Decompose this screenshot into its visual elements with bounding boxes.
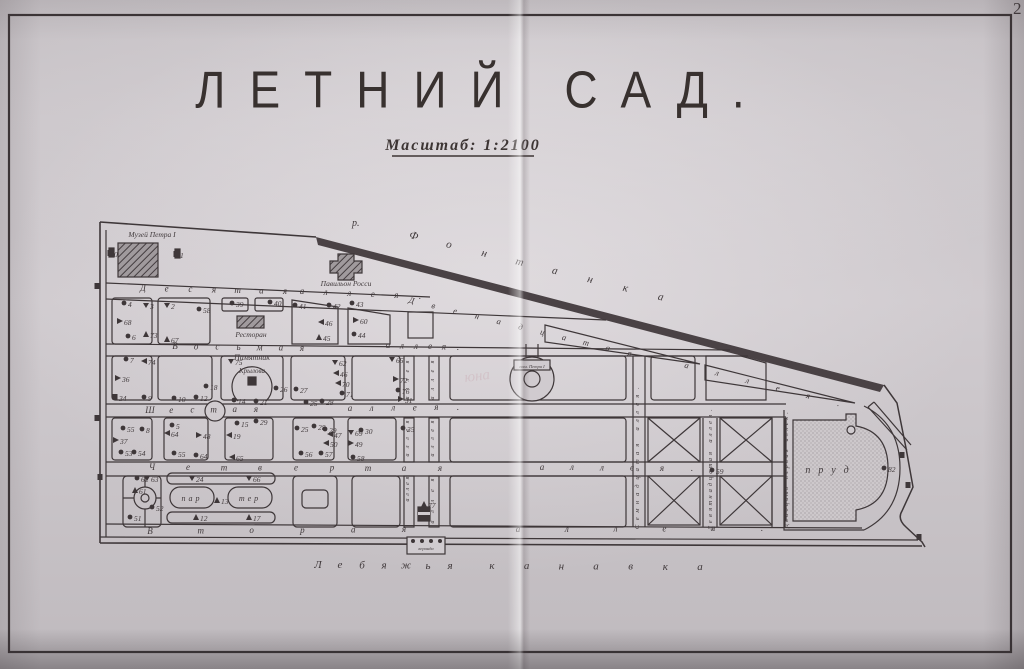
alley-label: т xyxy=(365,463,372,473)
alley-label: ь xyxy=(784,487,790,490)
alley-label: л xyxy=(599,462,604,472)
point-dot-icon xyxy=(254,419,259,424)
map-point: 48 xyxy=(196,432,211,441)
point-number: 70 xyxy=(342,380,350,389)
map-point: 2 xyxy=(164,302,175,311)
map-point: 58 xyxy=(197,306,211,315)
alley-label: я xyxy=(430,360,436,364)
map-point xyxy=(900,452,905,458)
point-square-icon xyxy=(113,394,118,400)
alley-label: е xyxy=(165,284,169,294)
scanned-map-photo: 2 ЛЕТНИЙ САД. Масштаб: 1:2100 юна xyxy=(0,0,1024,669)
alley-label: е xyxy=(634,403,641,406)
alley-label: Ч xyxy=(149,462,156,472)
point-number: 25 xyxy=(301,425,309,434)
map-point: 53 xyxy=(119,449,133,458)
alley-label: а xyxy=(405,499,411,502)
embankment-sliver-1 xyxy=(545,325,700,364)
alley-label: е xyxy=(186,462,190,472)
pond-label: пруд xyxy=(805,465,856,476)
point-dot-icon xyxy=(150,505,155,510)
point-number: 37 xyxy=(119,437,128,446)
point-triangle-down-icon xyxy=(332,360,338,365)
point-dot-icon xyxy=(352,332,357,337)
point-triangle-right-icon xyxy=(393,376,399,382)
map-point: 71 xyxy=(340,390,354,399)
river-label: а xyxy=(524,560,530,572)
point-number: 82 xyxy=(888,465,896,474)
alley-label: л xyxy=(430,387,436,391)
point-triangle-left-icon xyxy=(333,370,339,376)
map-point xyxy=(95,415,100,421)
alley-label: е xyxy=(405,369,411,372)
alley-label: я xyxy=(430,478,436,482)
alley-label: а xyxy=(561,332,567,343)
point-number: 61 xyxy=(139,487,147,496)
point-number: 68 xyxy=(124,318,132,327)
alley-label: о xyxy=(194,341,199,351)
alley-label: д xyxy=(783,508,790,511)
map-point xyxy=(98,474,103,480)
point-dot-icon xyxy=(351,455,356,460)
alley-label: а xyxy=(259,286,264,296)
alley-label: а xyxy=(634,493,641,496)
alley-label: а xyxy=(348,403,353,413)
point-number: 19 xyxy=(233,432,241,441)
point-number: 29 xyxy=(260,418,268,427)
map-point: 15 xyxy=(235,420,249,429)
point-triangle-down-icon xyxy=(348,430,354,435)
alley-label: а xyxy=(351,524,356,534)
alley-label: л xyxy=(634,419,641,423)
point-triangle-right-icon xyxy=(196,432,202,438)
fountain-plate-label: пам. Петра I xyxy=(519,364,545,369)
alley-label: л xyxy=(405,445,411,449)
alley-label: а xyxy=(634,468,641,471)
point-dot-icon xyxy=(232,398,237,403)
alley-label: . xyxy=(836,398,840,408)
point-dot-icon xyxy=(119,450,124,455)
alley-label: е xyxy=(430,429,436,432)
alley-label: е xyxy=(784,422,790,425)
point-dot-icon xyxy=(142,395,147,400)
point-dot-icon xyxy=(172,451,177,456)
point-triangle-up-icon xyxy=(214,497,220,503)
map-point: 62 xyxy=(332,359,347,368)
river-label: Ф xyxy=(408,229,420,243)
ghost-handwriting: юна xyxy=(464,367,491,386)
map-point: 35 xyxy=(401,425,415,434)
alley-label: я xyxy=(430,420,436,424)
alley-label: я xyxy=(405,420,411,424)
point-square-icon xyxy=(95,283,100,289)
map-point: 65 xyxy=(389,356,404,365)
point-number: 49 xyxy=(355,440,363,449)
point-number: 59 xyxy=(716,467,724,476)
map-point: 54 xyxy=(132,449,146,458)
map-point: 18 xyxy=(204,383,218,392)
alley-label: а xyxy=(300,286,305,296)
point-number: 0 xyxy=(114,250,118,259)
map-point: 12 xyxy=(194,394,208,403)
alley-label: е xyxy=(430,489,436,492)
point-number: 25 xyxy=(310,399,318,408)
alley-label: е xyxy=(428,341,432,351)
south-fence-outer xyxy=(100,543,922,546)
alley-label: я xyxy=(634,444,641,448)
map-point: 4 xyxy=(122,300,132,309)
alley-label: е xyxy=(662,523,666,533)
point-number: 71 xyxy=(346,390,354,399)
map-point: 46 xyxy=(318,319,333,328)
alley-label: а xyxy=(634,452,641,455)
point-triangle-up-icon xyxy=(143,331,149,337)
map-scale-note: Масштаб: 1:2100 xyxy=(384,137,541,154)
river-label: а xyxy=(697,561,703,573)
alley-label: л xyxy=(713,367,720,378)
map-point: 37 xyxy=(113,437,128,446)
alley-label: т xyxy=(634,459,641,464)
point-dot-icon xyxy=(293,303,298,308)
alley-label: е xyxy=(405,482,411,485)
point-number: 35 xyxy=(406,425,415,434)
point-dot-icon xyxy=(396,388,401,393)
point-triangle-up-icon xyxy=(193,514,199,520)
point-number: 34 xyxy=(118,394,127,403)
point-number: 55 xyxy=(178,450,186,459)
point-number: 63 xyxy=(151,475,159,484)
alley-label: е xyxy=(169,405,173,415)
point-number: 26 xyxy=(280,385,288,394)
alley-label: а xyxy=(279,343,284,353)
alley-label: я xyxy=(784,417,790,421)
river-label: к xyxy=(663,561,669,573)
point-triangle-left-icon xyxy=(229,454,235,460)
point-number: 6 xyxy=(132,333,136,342)
point-number: 42 xyxy=(333,302,341,311)
map-point: 75 xyxy=(228,358,243,367)
map-point: 64 xyxy=(164,430,179,439)
point-dot-icon xyxy=(319,451,324,456)
point-triangle-up-icon xyxy=(164,336,170,342)
river-abbrev-label: р. xyxy=(351,218,360,229)
alley-label: л xyxy=(569,462,574,472)
map-point: 8 xyxy=(140,426,150,435)
alley-label: п xyxy=(784,476,790,479)
alley-label: а xyxy=(430,521,436,524)
alley-label: а xyxy=(233,404,238,414)
alley-label: я xyxy=(804,390,811,401)
point-number: 72 xyxy=(400,376,408,385)
alley-label: я xyxy=(393,290,398,300)
point-number: 58 xyxy=(203,306,211,315)
point-triangle-left-icon xyxy=(141,358,147,364)
fontanka-embankment xyxy=(316,237,884,392)
point-dot-icon xyxy=(132,450,137,455)
peter-museum-building xyxy=(118,243,158,277)
alley-label: а xyxy=(540,462,545,472)
alley-label: р xyxy=(299,525,305,535)
point-number: 28 xyxy=(326,398,334,407)
alley-label: л xyxy=(430,378,436,382)
alley-label: а xyxy=(784,498,790,501)
alley-label: ц xyxy=(784,503,790,506)
map-point: 27 xyxy=(294,386,308,395)
river-label: н xyxy=(480,247,489,260)
alley-label: т xyxy=(582,337,590,348)
alley-label: м xyxy=(634,509,641,514)
point-number: 7 xyxy=(130,356,134,365)
point-dot-icon xyxy=(359,428,364,433)
alley-label: л xyxy=(399,340,404,350)
point-square-icon xyxy=(108,250,113,256)
map-point: 55 xyxy=(172,450,186,459)
alley-label: в xyxy=(431,300,437,311)
alley-label: л xyxy=(784,433,790,437)
point-triangle-up-icon xyxy=(421,501,427,507)
map-point: 68 xyxy=(117,318,132,327)
point-number: 39 xyxy=(235,300,244,309)
map-point: 28 xyxy=(320,398,334,407)
alley-label: л xyxy=(430,437,436,441)
point-number: 50 xyxy=(330,440,338,449)
alley-label: л xyxy=(430,510,436,514)
point-number: 31 xyxy=(404,396,413,405)
point-number: 67 xyxy=(171,336,179,345)
alley-label: л xyxy=(390,403,395,413)
alley-label: я xyxy=(707,415,714,419)
alley-label: а xyxy=(430,397,436,400)
map-point: 76 xyxy=(396,387,410,396)
alley-label: С xyxy=(634,524,641,529)
point-dot-icon xyxy=(295,426,300,431)
point-dot-icon xyxy=(294,387,299,392)
river-label: н xyxy=(559,560,565,572)
map-point: 43 xyxy=(350,300,364,309)
point-dot-icon xyxy=(122,301,127,306)
alley-label: д xyxy=(634,484,641,488)
alley-label: н xyxy=(474,311,480,322)
river-label: ь xyxy=(425,560,430,572)
alley-label: л xyxy=(413,341,418,351)
point-dot-icon xyxy=(128,515,133,520)
point-number: 75 xyxy=(235,358,243,367)
point-dot-icon xyxy=(323,427,328,432)
point-number: 10 xyxy=(178,395,186,404)
point-number: 73 xyxy=(150,331,158,340)
point-dot-icon xyxy=(204,384,209,389)
point-number: 64 xyxy=(171,430,179,439)
point-number: 46 xyxy=(325,319,333,328)
map-point: 9 xyxy=(142,394,152,403)
point-number: 2 xyxy=(171,302,175,311)
map-point xyxy=(906,482,911,488)
alley-label: е xyxy=(371,289,375,299)
map-point xyxy=(917,534,922,540)
alley-label: в xyxy=(707,514,714,517)
restaurant-label: Ресторан xyxy=(234,330,267,339)
point-square-icon xyxy=(98,474,103,480)
alley-label: ь xyxy=(236,342,240,352)
point-dot-icon xyxy=(312,424,317,429)
alley-label: т xyxy=(198,526,205,536)
point-dot-icon xyxy=(304,400,309,405)
alley-label: л xyxy=(744,375,751,386)
alley-label: я xyxy=(401,524,406,534)
alley-label: р xyxy=(329,463,335,473)
point-dot-icon xyxy=(268,300,273,305)
map-point: 66 xyxy=(246,475,261,484)
map-point: 6 xyxy=(126,333,136,342)
alley-label: а xyxy=(430,454,436,457)
point-number: 18 xyxy=(210,383,218,392)
alley-label: л xyxy=(707,427,714,431)
alley-label: л xyxy=(784,427,790,431)
river-label: о xyxy=(445,238,454,251)
map-point: 51 xyxy=(128,514,142,523)
alley-label: л xyxy=(613,524,618,534)
point-triangle-down-icon xyxy=(389,357,395,362)
river-label: б xyxy=(359,559,365,571)
alley-label: т xyxy=(707,501,714,506)
point-number: 14 xyxy=(238,397,246,406)
alley-label: а xyxy=(707,439,714,442)
map-point: 49 xyxy=(348,440,363,449)
point-number: 30 xyxy=(364,427,373,436)
point-dot-icon xyxy=(320,399,325,404)
alley-label: а xyxy=(784,514,790,517)
map-point: 39 xyxy=(230,300,244,309)
alley-label: о xyxy=(249,525,254,535)
alley-label: н xyxy=(707,495,714,498)
river-label: я xyxy=(380,560,386,572)
map-point: 72 xyxy=(393,376,408,385)
point-number: 47 xyxy=(334,431,342,440)
river-label: а xyxy=(593,561,599,573)
krylov-label-2: Крылова xyxy=(238,367,266,375)
alley-label: я xyxy=(405,476,411,480)
point-triangle-up-icon xyxy=(246,514,252,520)
point-dot-icon xyxy=(126,334,131,339)
river-label: в xyxy=(628,561,633,573)
map-point: 10 xyxy=(172,395,186,404)
map-point: 73 xyxy=(143,331,158,340)
point-number: 64 xyxy=(200,452,208,461)
point-number: 54 xyxy=(138,449,146,458)
point-number: 1 xyxy=(180,251,184,260)
river-label: к xyxy=(621,282,630,295)
alley-label: л xyxy=(707,433,714,437)
point-number: 13 xyxy=(221,497,229,506)
point-dot-icon xyxy=(124,357,129,362)
alley-label: в xyxy=(784,519,790,522)
alley-label: а xyxy=(784,438,790,441)
alley-label: т xyxy=(221,462,228,472)
point-number: 3 xyxy=(149,302,154,311)
alley-label: л xyxy=(405,437,411,441)
alley-label: л xyxy=(564,524,569,534)
map-point: 55 xyxy=(121,425,135,434)
alley-label: д xyxy=(517,321,524,332)
alley-label: е xyxy=(413,402,417,412)
river-label: е xyxy=(338,559,343,571)
map-point: 3 xyxy=(143,302,154,311)
point-number: 56 xyxy=(305,450,313,459)
alley-label: а xyxy=(402,463,407,473)
alley-label: в xyxy=(784,460,790,463)
point-square-icon xyxy=(95,415,100,421)
point-number: 45 xyxy=(323,334,331,343)
river-label: а xyxy=(551,264,560,277)
alley-label: Д xyxy=(707,525,714,531)
alley-label: я xyxy=(437,463,442,473)
point-dot-icon xyxy=(197,307,202,312)
point-square-icon xyxy=(900,452,905,458)
point-number: 44 xyxy=(358,331,366,340)
map-point: 36 xyxy=(115,375,130,384)
alley-label: я xyxy=(659,463,664,473)
alley-label: т xyxy=(210,404,217,414)
parterre-label-1: пар xyxy=(182,494,203,503)
map-point: 29 xyxy=(254,418,268,427)
restaurant-building xyxy=(237,316,264,328)
point-dot-icon xyxy=(299,451,304,456)
map-point: 25 xyxy=(304,399,318,408)
map-point: 42 xyxy=(327,302,341,311)
veranda-label: веранда xyxy=(418,546,434,551)
parterre-label-2: тер xyxy=(239,494,261,503)
point-number: 58 xyxy=(357,454,365,463)
point-number: 60 xyxy=(360,317,368,326)
point-dot-icon xyxy=(172,396,177,401)
map-point: 70 xyxy=(335,380,350,389)
map-point xyxy=(95,283,100,289)
fourth-alley-lines xyxy=(106,462,786,476)
alley-label: я xyxy=(634,395,641,399)
point-number: 8 xyxy=(146,426,150,435)
alley-label: е xyxy=(430,369,436,372)
alley-label: е xyxy=(707,421,714,424)
point-number: 52 xyxy=(156,504,164,513)
point-square-icon xyxy=(174,251,179,257)
alley-label: л xyxy=(369,403,374,413)
point-dot-icon xyxy=(194,395,199,400)
point-dot-icon xyxy=(230,301,235,306)
alley-label: р xyxy=(784,465,790,469)
map-point: 41 xyxy=(293,302,307,311)
alley-label: а xyxy=(784,455,790,458)
alley-label: а xyxy=(707,489,714,492)
alley-label: м xyxy=(256,342,263,352)
point-dot-icon xyxy=(194,453,199,458)
point-dot-icon xyxy=(254,399,259,404)
point-number: 46 xyxy=(340,370,348,379)
point-number: 43 xyxy=(356,300,364,309)
point-number: 66 xyxy=(253,475,261,484)
rossi-pavilion-building xyxy=(330,254,362,280)
river-label: ж xyxy=(401,560,412,572)
point-number: 57 xyxy=(325,450,333,459)
map-point: 60 xyxy=(353,317,368,326)
alley-label: Ш xyxy=(144,405,155,415)
alley-label: я xyxy=(299,343,304,353)
alley-label: я xyxy=(707,452,714,456)
point-dot-icon xyxy=(121,426,126,431)
alley-label: . xyxy=(634,387,641,389)
point-dot-icon xyxy=(327,303,332,308)
alley-label: В xyxy=(147,526,153,536)
point-dot-icon xyxy=(882,466,887,471)
